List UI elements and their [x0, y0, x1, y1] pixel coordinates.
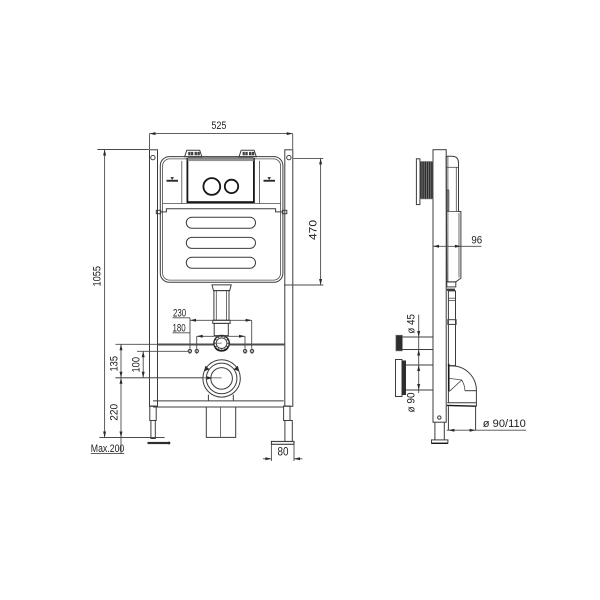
svg-text:ø 45: ø 45: [406, 314, 418, 334]
svg-text:100: 100: [131, 357, 143, 373]
svg-text:470: 470: [307, 220, 319, 240]
svg-text:96: 96: [471, 235, 482, 247]
svg-text:220: 220: [108, 404, 120, 421]
svg-text:ø 90: ø 90: [406, 393, 418, 413]
svg-text:135: 135: [108, 356, 120, 372]
svg-text:525: 525: [211, 120, 226, 132]
svg-text:ø 90/110: ø 90/110: [483, 418, 526, 430]
svg-text:1055: 1055: [92, 266, 104, 287]
svg-text:80: 80: [278, 447, 289, 459]
